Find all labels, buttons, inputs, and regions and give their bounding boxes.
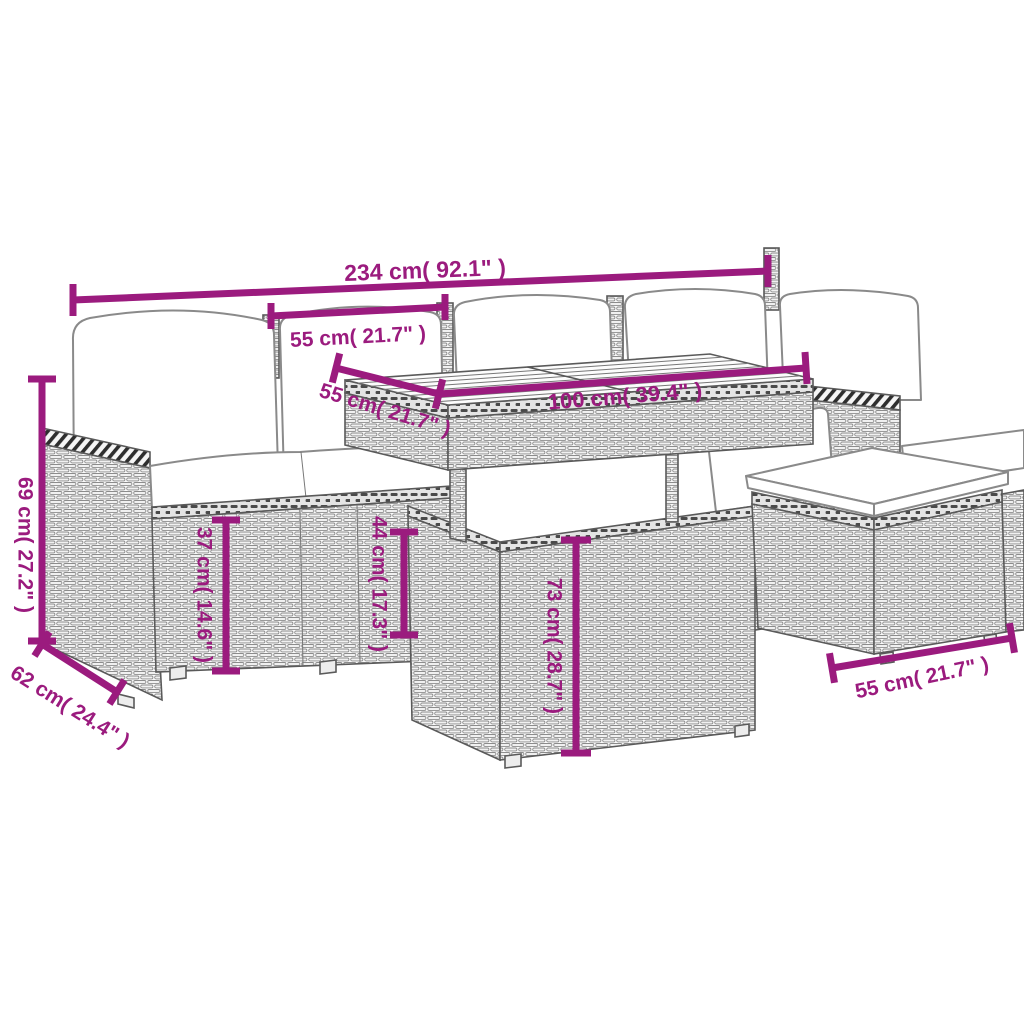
foot [320,660,336,674]
armrest-side [42,444,162,700]
dimension-label: 44 cm( 17.3" ) [368,516,391,652]
foot [735,724,749,737]
foot [505,754,521,768]
furniture-line-art: 234 cm( 92.1" ) 55 cm( 21.7" ) 69 cm( 27… [0,0,1024,1024]
stool-body-left [752,504,874,654]
foot [118,694,134,708]
table-leg [666,446,678,522]
table-base-left [408,516,500,760]
footstool [746,448,1008,664]
dimension-label: 37 cm( 14.6" ) [193,527,216,663]
table-base-front [500,516,755,760]
dimension-label: 73 cm( 28.7" ) [543,578,566,714]
foot [170,666,186,680]
dimension-diagram: 234 cm( 92.1" ) 55 cm( 21.7" ) 69 cm( 27… [0,0,1024,1024]
table-leg [450,466,466,542]
dimension-label: 69 cm( 27.2" ) [14,477,37,613]
